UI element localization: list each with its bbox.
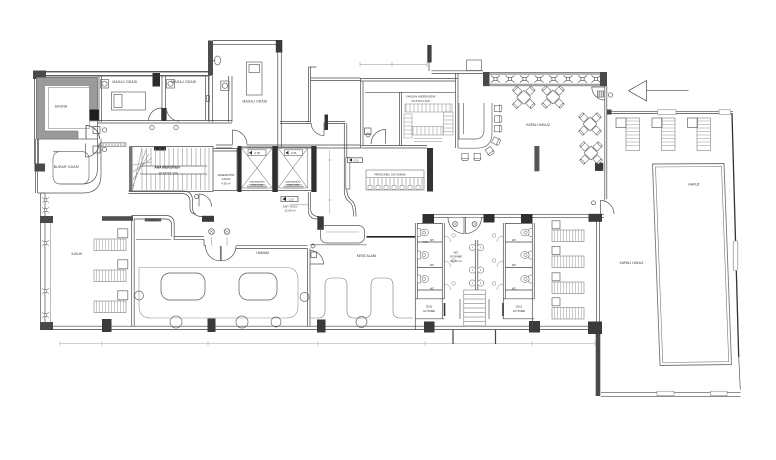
- svg-text:WC: WC: [430, 238, 434, 242]
- svg-text:HAVUZ: HAVUZ: [688, 182, 699, 186]
- svg-text:DUŞ: DUŞ: [426, 305, 432, 309]
- svg-text:SEDİR: SEDİR: [150, 219, 156, 222]
- svg-text:YANGIN MERDİVENİ: YANGIN MERDİVENİ: [406, 94, 436, 99]
- svg-text:4.30 m²: 4.30 m²: [221, 182, 231, 186]
- svg-text:WC: WC: [430, 287, 434, 291]
- svg-text:ODASI: ODASI: [222, 177, 231, 181]
- svg-text:GİYİNME: GİYİNME: [450, 254, 462, 259]
- svg-text:23.00 m²: 23.00 m²: [450, 259, 461, 263]
- svg-text:GİYİNME: GİYİNME: [513, 308, 525, 313]
- svg-text:-0.05: -0.05: [422, 242, 428, 244]
- svg-text:DUŞ: DUŞ: [516, 305, 522, 309]
- svg-text:BUHAR ODASI: BUHAR ODASI: [54, 165, 80, 169]
- svg-text:ANA MERDİVEN: ANA MERDİVEN: [154, 165, 180, 169]
- svg-text:SAUNA: SAUNA: [55, 105, 68, 109]
- svg-text:16.6T/24.120: 16.6T/24.120: [411, 99, 430, 103]
- svg-text:eşya asansörü: eşya asansörü: [250, 181, 266, 184]
- svg-text:16.6T/24.120: 16.6T/24.120: [158, 172, 178, 176]
- svg-text:KESE ALANI: KESE ALANI: [357, 254, 377, 258]
- svg-text:WC: WC: [430, 263, 434, 267]
- svg-text:HAMAM: HAMAM: [256, 251, 269, 255]
- svg-text:12.00 m²: 12.00 m²: [284, 209, 295, 213]
- svg-text:MASAJ ODASI: MASAJ ODASI: [113, 80, 138, 84]
- svg-text:PERSONEL SOYUNMA: PERSONEL SOYUNMA: [374, 173, 405, 177]
- svg-text:KAPALI HAVUZ: KAPALI HAVUZ: [526, 123, 550, 127]
- svg-text:MASAJ ODASI: MASAJ ODASI: [243, 100, 268, 104]
- svg-text:-1.20: -1.20: [353, 158, 359, 162]
- svg-text:GİYİNME: GİYİNME: [423, 308, 435, 313]
- svg-text:WC: WC: [512, 287, 516, 291]
- svg-text:-0.05: -0.05: [254, 151, 260, 155]
- svg-text:ILIKLIK: ILIKLIK: [71, 252, 83, 256]
- svg-text:2.05 x 2.05: 2.05 x 2.05: [287, 185, 299, 187]
- svg-text:WC: WC: [512, 238, 516, 242]
- svg-text:-1.20: -1.20: [288, 197, 294, 201]
- svg-text:eşya asansörü: eşya asansörü: [286, 181, 302, 184]
- svg-text:MASAJ ODASI: MASAJ ODASI: [172, 80, 197, 84]
- svg-text:KAPALI HAVUZ: KAPALI HAVUZ: [620, 261, 644, 265]
- svg-text:WC: WC: [512, 263, 516, 267]
- svg-text:-0.05: -0.05: [290, 151, 296, 155]
- svg-text:2.05 x 2.05: 2.05 x 2.05: [251, 185, 263, 187]
